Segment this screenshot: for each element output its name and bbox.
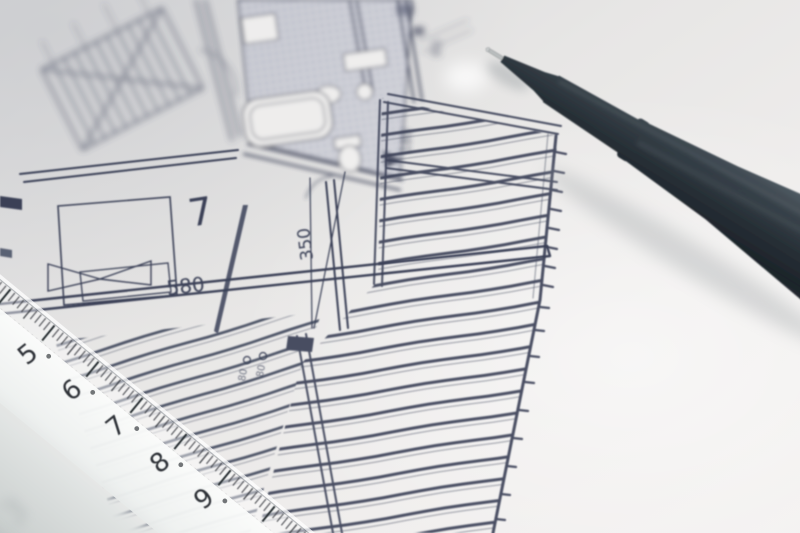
paper-glow [444,62,488,92]
dim-350-label: 350 [294,227,318,262]
photo-architecture-plan: 80 [0,0,800,533]
photo-canvas: 80 [0,0,800,533]
wall-chunk [286,336,314,352]
wall-chunk [413,27,424,35]
dim-580-label: 580 [165,272,206,300]
dim-80-top: 80 [429,39,446,57]
washer-icon [241,14,278,44]
